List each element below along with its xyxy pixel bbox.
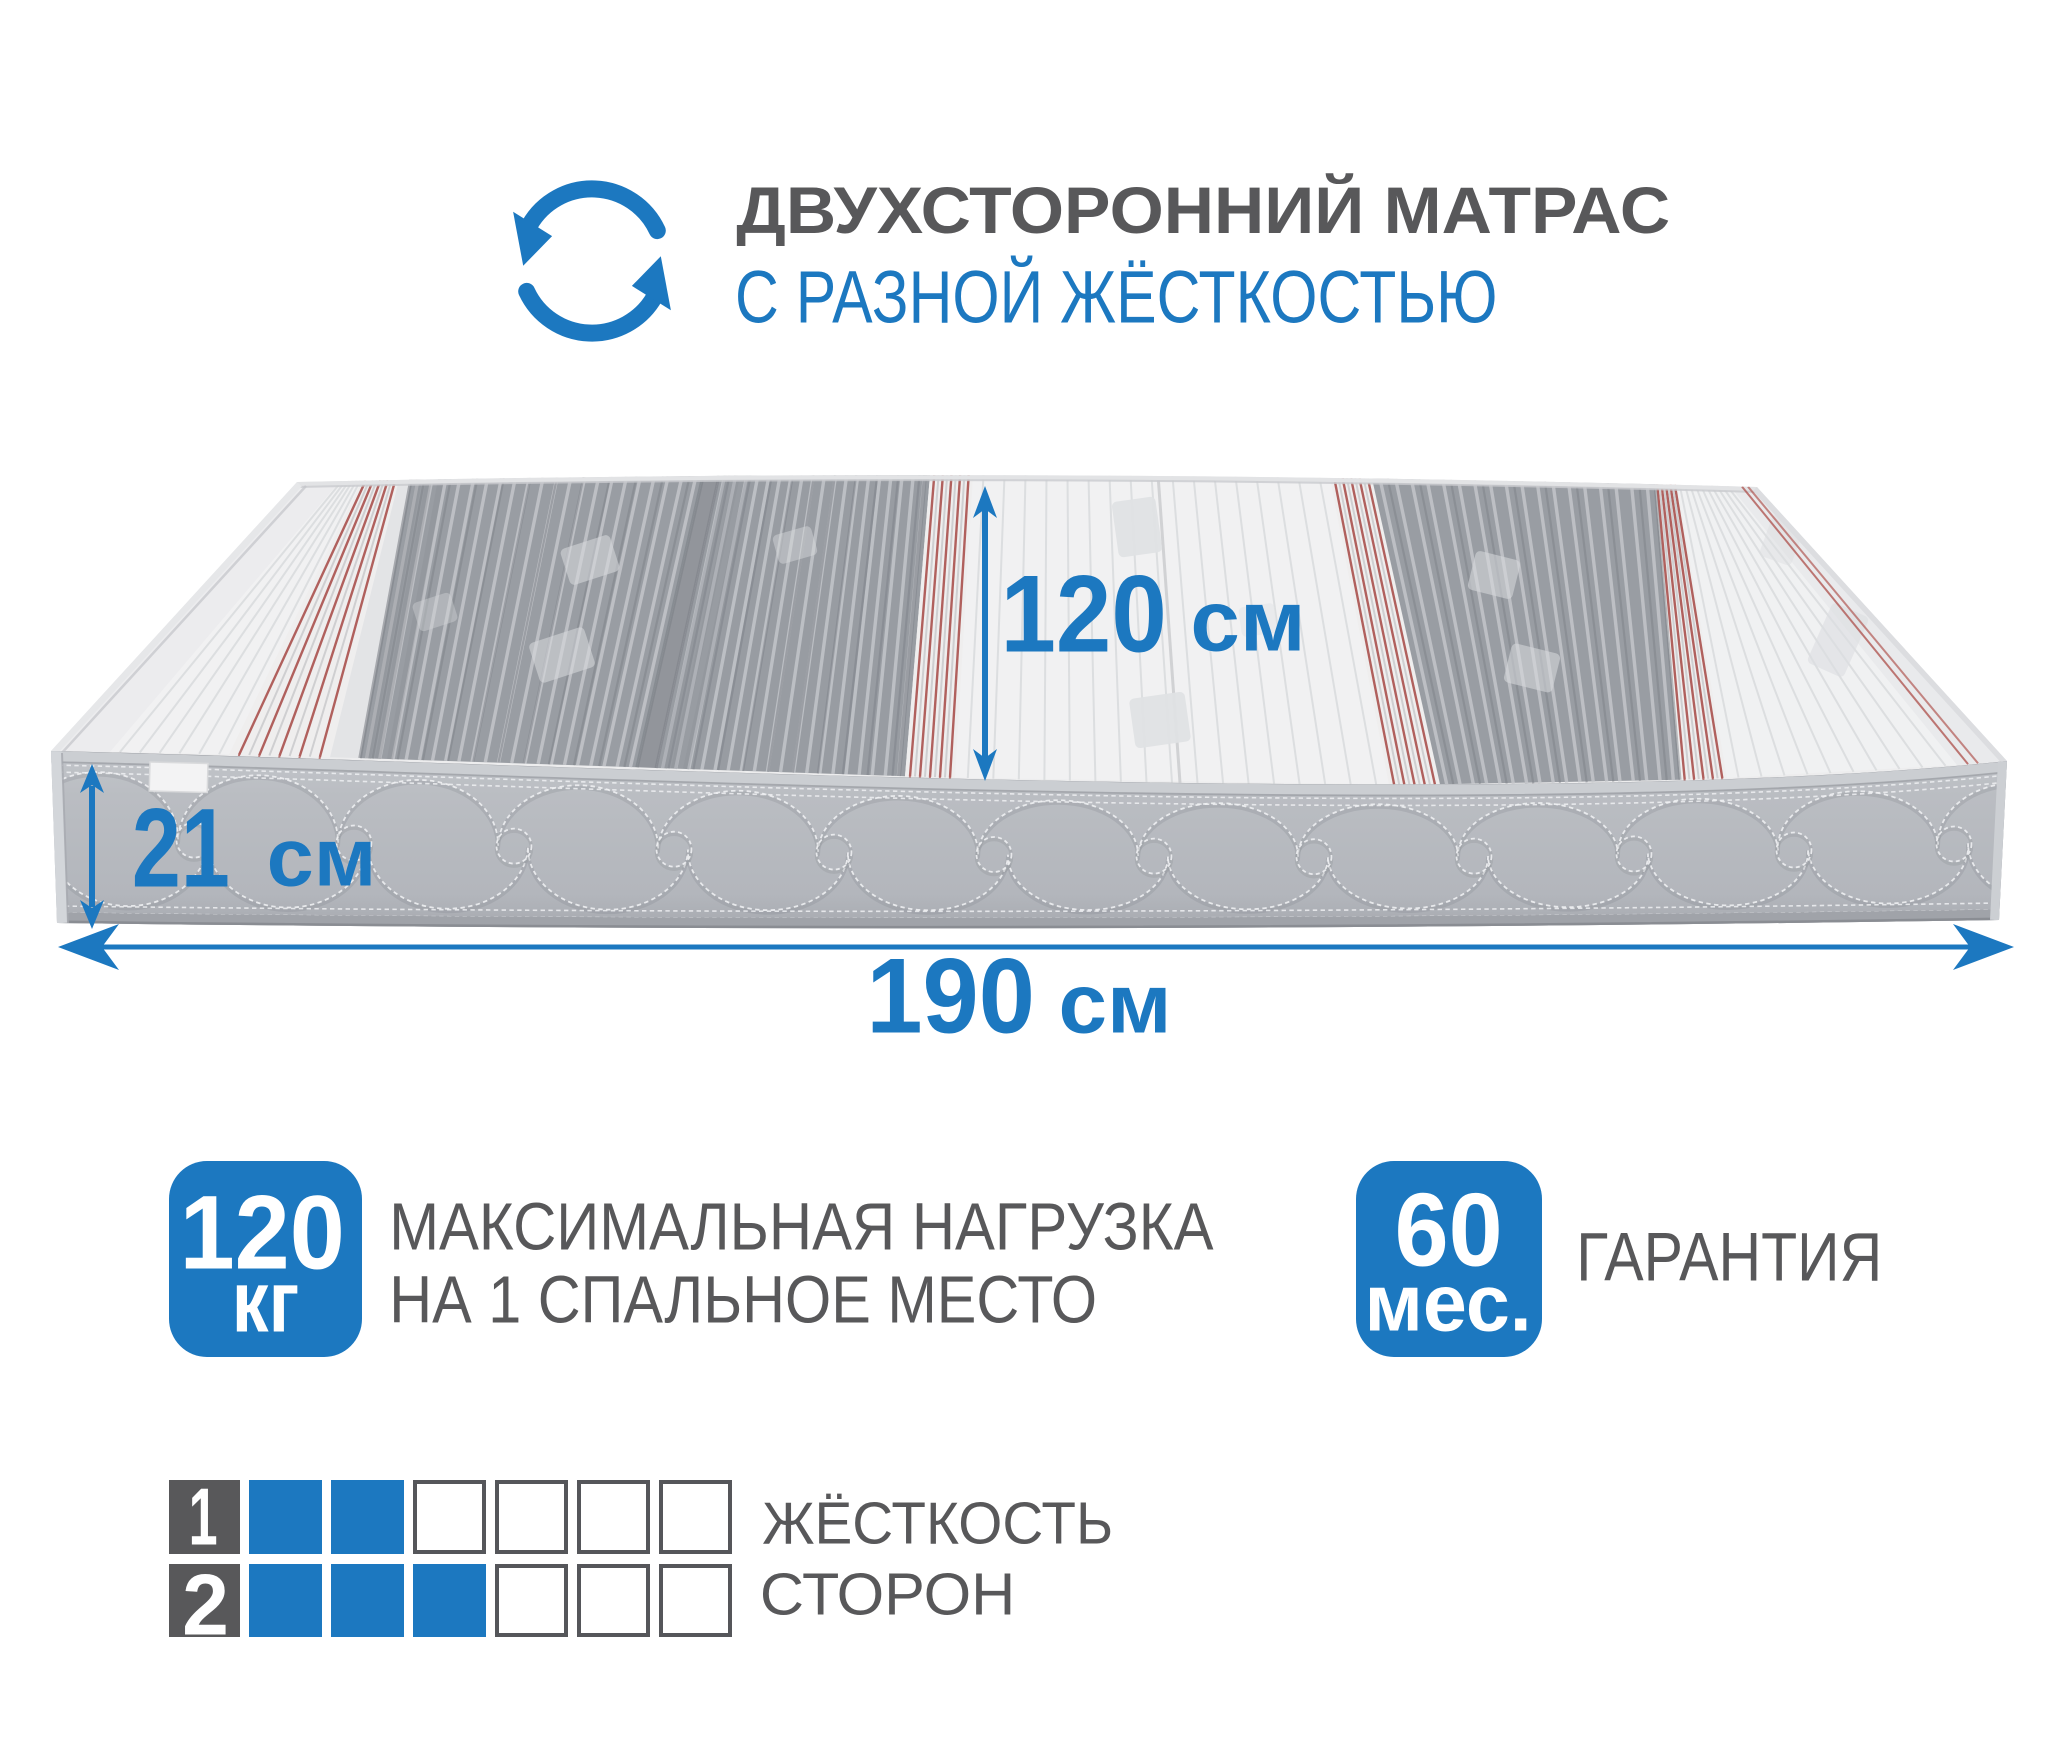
svg-text:см: см — [1190, 574, 1305, 670]
svg-text:120: 120 — [1001, 554, 1167, 676]
svg-text:МАКСИМАЛЬНАЯ НАГРУЗКА: МАКСИМАЛЬНАЯ НАГРУЗКА — [389, 1189, 1213, 1264]
svg-text:190: 190 — [866, 937, 1035, 1056]
svg-text:ЖЁСТКОСТЬ: ЖЁСТКОСТЬ — [762, 1490, 1113, 1557]
svg-text:2: 2 — [182, 1557, 229, 1653]
svg-text:СТОРОН: СТОРОН — [760, 1561, 1015, 1628]
svg-text:С РАЗНОЙ ЖЁСТКОСТЬЮ: С РАЗНОЙ ЖЁСТКОСТЬЮ — [735, 256, 1498, 339]
svg-text:21: 21 — [132, 785, 230, 911]
svg-text:мес.: мес. — [1365, 1259, 1532, 1349]
svg-text:ДВУХСТОРОННИЙ МАТРАС: ДВУХСТОРОННИЙ МАТРАС — [736, 174, 1670, 247]
svg-text:см: см — [1059, 957, 1172, 1051]
svg-text:НА 1 СПАЛЬНОЕ МЕСТО: НА 1 СПАЛЬНОЕ МЕСТО — [389, 1262, 1097, 1337]
svg-text:ГАРАНТИЯ: ГАРАНТИЯ — [1576, 1218, 1882, 1295]
svg-text:см: см — [267, 811, 377, 904]
svg-text:кг: кг — [232, 1252, 299, 1350]
svg-text:1: 1 — [189, 1472, 218, 1562]
